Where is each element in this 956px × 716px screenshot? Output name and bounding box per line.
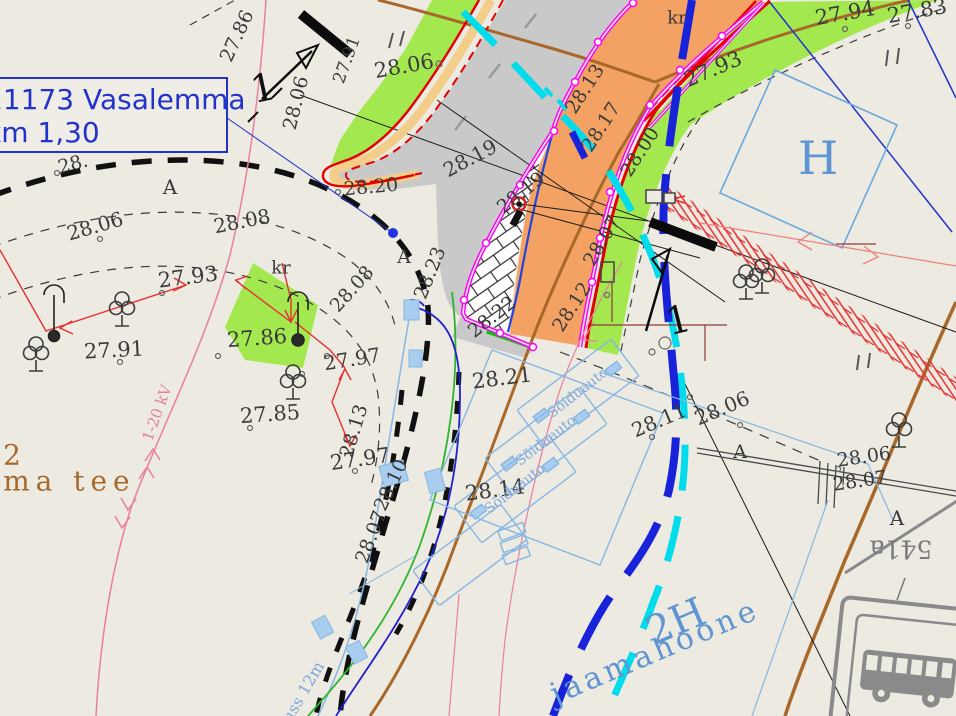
elevation-label: 27.85 (239, 400, 301, 428)
site-plan-drawing: 11173 Vasalemma km 1,30 27.8628.0627.912… (0, 0, 956, 716)
plot-number-label: 541a (870, 535, 933, 564)
title-line-1: 11173 Vasalemma (0, 83, 246, 116)
surface-mark-label: A (162, 175, 178, 199)
road-name-label: ama tee (0, 465, 136, 498)
elevation-label: 27.91 (83, 336, 144, 363)
ditch-label: kr (667, 8, 687, 29)
ditch-label: kr (271, 258, 291, 279)
surface-mark-label: A (396, 246, 411, 268)
site-plan: 11173 Vasalemma km 1,30 27.8628.0627.912… (0, 0, 956, 716)
surface-mark-label: A (732, 441, 747, 463)
building-label: H (798, 131, 838, 185)
title-line-2: km 1,30 (0, 116, 100, 149)
elevation-label: 27.86 (226, 324, 288, 352)
surface-mark-label: A (889, 506, 905, 530)
reference-point-dot (388, 228, 398, 238)
